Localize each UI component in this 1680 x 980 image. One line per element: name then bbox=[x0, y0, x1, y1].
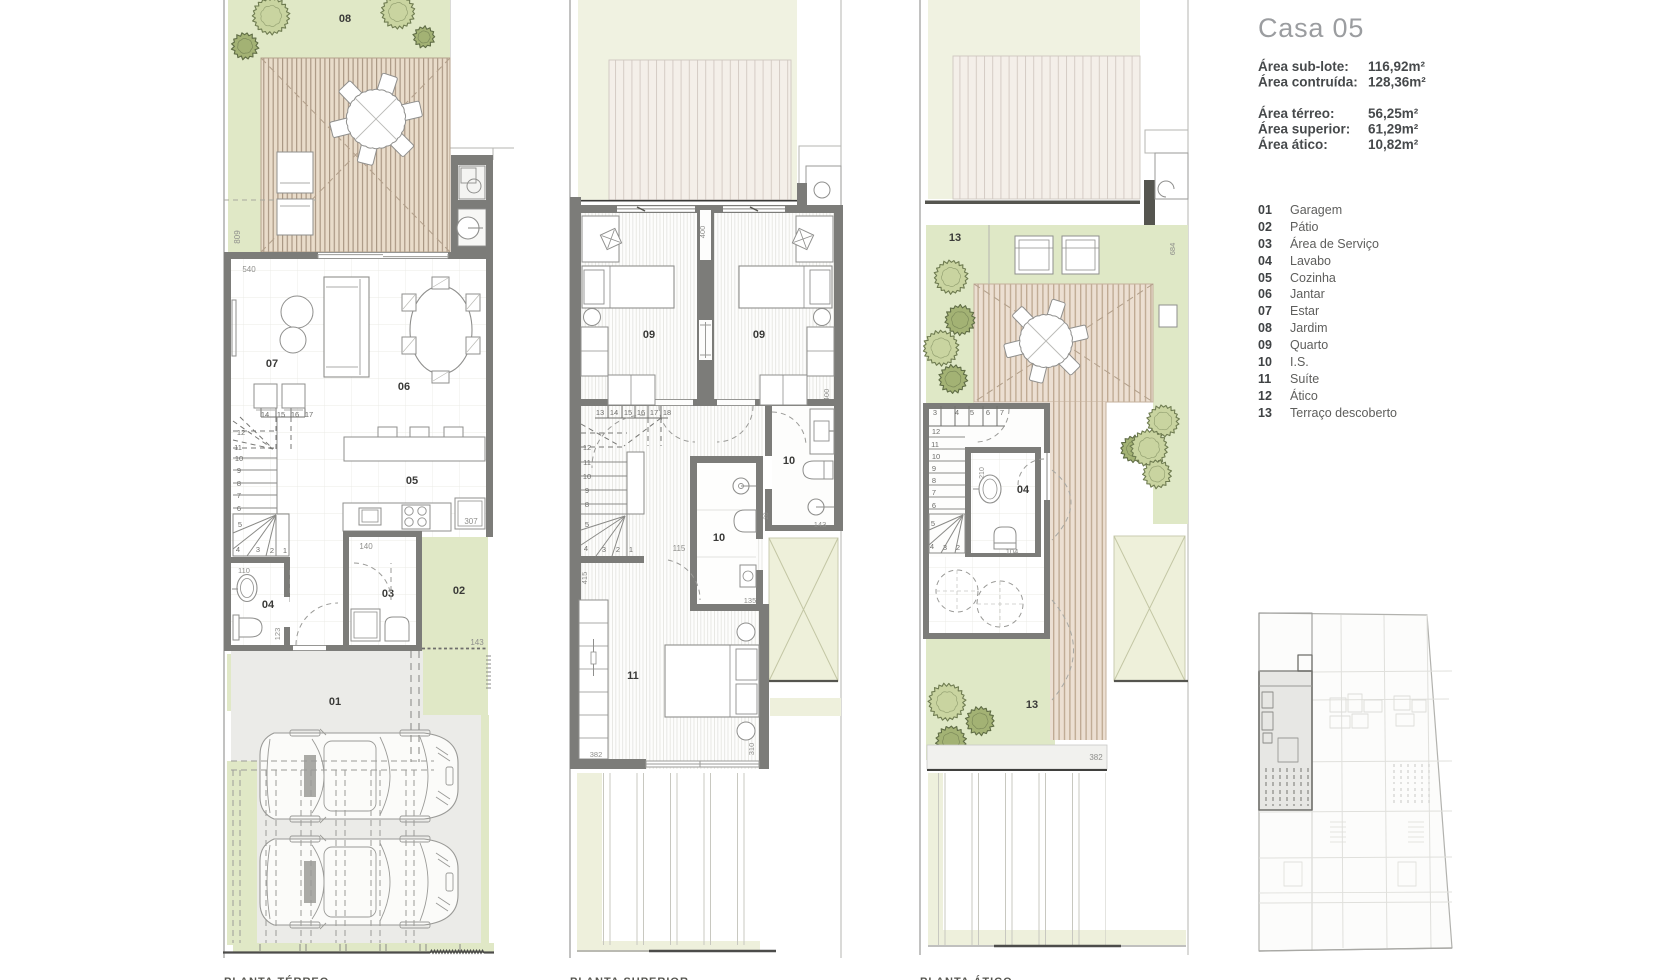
svg-text:9: 9 bbox=[585, 486, 589, 495]
svg-text:307: 307 bbox=[464, 517, 478, 526]
svg-text:Pátio: Pátio bbox=[1290, 220, 1319, 234]
svg-text:143: 143 bbox=[814, 520, 827, 529]
svg-text:Área contruída:: Área contruída: bbox=[1258, 75, 1358, 90]
svg-text:7: 7 bbox=[1000, 408, 1004, 417]
svg-text:11: 11 bbox=[627, 670, 639, 682]
svg-text:04: 04 bbox=[1258, 254, 1272, 268]
svg-text:09: 09 bbox=[643, 329, 655, 341]
svg-text:3: 3 bbox=[602, 545, 606, 554]
svg-text:310: 310 bbox=[747, 743, 756, 756]
svg-text:382: 382 bbox=[1089, 753, 1103, 762]
svg-text:5: 5 bbox=[931, 519, 935, 528]
svg-text:61,29m²: 61,29m² bbox=[1368, 122, 1419, 137]
svg-text:415: 415 bbox=[580, 572, 589, 585]
svg-text:Área térreo:: Área térreo: bbox=[1258, 106, 1335, 121]
svg-text:13: 13 bbox=[1258, 406, 1272, 420]
svg-text:10,82m²: 10,82m² bbox=[1368, 137, 1419, 152]
svg-text:14: 14 bbox=[610, 408, 618, 417]
svg-text:382: 382 bbox=[590, 750, 603, 759]
svg-text:5: 5 bbox=[238, 520, 242, 529]
svg-text:10: 10 bbox=[713, 532, 725, 544]
svg-text:6: 6 bbox=[237, 504, 241, 513]
svg-text:12: 12 bbox=[932, 427, 940, 436]
svg-text:11: 11 bbox=[583, 458, 591, 467]
svg-text:05: 05 bbox=[1258, 271, 1272, 285]
svg-text:11: 11 bbox=[931, 440, 939, 449]
svg-text:Estar: Estar bbox=[1290, 304, 1319, 318]
svg-text:18: 18 bbox=[663, 408, 671, 417]
svg-text:06: 06 bbox=[1258, 287, 1272, 301]
svg-text:11: 11 bbox=[1258, 372, 1271, 386]
svg-text:PLANTA TÉRREO: PLANTA TÉRREO bbox=[224, 975, 329, 980]
svg-text:128,36m²: 128,36m² bbox=[1368, 75, 1426, 90]
svg-text:Cozinha: Cozinha bbox=[1290, 271, 1336, 285]
svg-text:8: 8 bbox=[932, 476, 936, 485]
svg-text:400: 400 bbox=[698, 226, 707, 239]
svg-text:12: 12 bbox=[583, 443, 591, 452]
svg-text:Área sub-lote:: Área sub-lote: bbox=[1258, 59, 1349, 74]
svg-text:116,92m²: 116,92m² bbox=[1368, 59, 1426, 74]
svg-text:Casa 05: Casa 05 bbox=[1258, 13, 1364, 43]
svg-text:3: 3 bbox=[943, 543, 947, 552]
svg-text:02: 02 bbox=[453, 585, 465, 597]
svg-text:05: 05 bbox=[406, 475, 418, 487]
svg-text:12: 12 bbox=[237, 428, 245, 437]
svg-text:08: 08 bbox=[1258, 321, 1272, 335]
svg-text:56,25m²: 56,25m² bbox=[1368, 106, 1419, 121]
svg-text:Jantar: Jantar bbox=[1290, 287, 1325, 301]
svg-text:210: 210 bbox=[979, 467, 986, 479]
svg-text:Terraço descoberto: Terraço descoberto bbox=[1290, 406, 1397, 420]
svg-text:Área de Serviço: Área de Serviço bbox=[1290, 236, 1379, 251]
svg-text:01: 01 bbox=[1258, 203, 1272, 217]
svg-text:03: 03 bbox=[1258, 237, 1272, 251]
svg-text:809: 809 bbox=[233, 230, 242, 244]
svg-text:540: 540 bbox=[242, 265, 256, 274]
svg-text:4: 4 bbox=[930, 542, 934, 551]
svg-text:Ático: Ático bbox=[1290, 388, 1318, 403]
svg-text:4: 4 bbox=[584, 544, 588, 553]
svg-text:7: 7 bbox=[237, 491, 241, 500]
svg-text:8: 8 bbox=[237, 479, 241, 488]
svg-text:11: 11 bbox=[234, 443, 242, 452]
svg-text:7: 7 bbox=[932, 488, 936, 497]
svg-text:115: 115 bbox=[673, 544, 686, 553]
svg-text:2: 2 bbox=[616, 545, 620, 554]
svg-text:2: 2 bbox=[956, 543, 960, 552]
svg-text:08: 08 bbox=[339, 13, 351, 25]
svg-text:04: 04 bbox=[1017, 484, 1030, 496]
svg-text:04: 04 bbox=[262, 599, 275, 611]
svg-text:3: 3 bbox=[256, 545, 260, 554]
svg-text:Jardim: Jardim bbox=[1290, 321, 1328, 335]
svg-text:1: 1 bbox=[283, 546, 287, 555]
svg-text:Garagem: Garagem bbox=[1290, 203, 1342, 217]
svg-text:Quarto: Quarto bbox=[1290, 338, 1328, 352]
svg-text:01: 01 bbox=[329, 696, 341, 708]
svg-text:6: 6 bbox=[986, 408, 990, 417]
svg-text:16: 16 bbox=[291, 410, 299, 419]
svg-text:3: 3 bbox=[933, 408, 937, 417]
svg-text:15: 15 bbox=[624, 408, 632, 417]
svg-text:1: 1 bbox=[629, 545, 633, 554]
svg-text:Área ático:: Área ático: bbox=[1258, 137, 1328, 152]
svg-text:07: 07 bbox=[1258, 304, 1272, 318]
svg-text:123: 123 bbox=[273, 628, 282, 641]
svg-text:09: 09 bbox=[1258, 338, 1272, 352]
svg-text:4: 4 bbox=[236, 545, 240, 554]
svg-text:I.S.: I.S. bbox=[1290, 355, 1309, 369]
svg-text:143: 143 bbox=[470, 638, 484, 647]
svg-text:17: 17 bbox=[305, 410, 313, 419]
svg-text:140: 140 bbox=[359, 542, 373, 551]
svg-text:12: 12 bbox=[1258, 389, 1272, 403]
svg-text:135: 135 bbox=[744, 596, 757, 605]
svg-text:10: 10 bbox=[783, 455, 795, 467]
svg-text:PLANTA ÁTICO: PLANTA ÁTICO bbox=[920, 975, 1013, 980]
svg-text:10: 10 bbox=[932, 452, 940, 461]
svg-text:14: 14 bbox=[261, 410, 269, 419]
svg-text:13: 13 bbox=[1026, 699, 1038, 711]
svg-text:07: 07 bbox=[266, 358, 278, 370]
svg-text:4: 4 bbox=[955, 408, 959, 417]
svg-text:10: 10 bbox=[583, 472, 591, 481]
svg-text:03: 03 bbox=[382, 588, 394, 600]
svg-text:104: 104 bbox=[1006, 547, 1019, 556]
svg-text:15: 15 bbox=[277, 410, 285, 419]
svg-text:9: 9 bbox=[237, 466, 241, 475]
svg-text:6: 6 bbox=[932, 501, 936, 510]
svg-text:20: 20 bbox=[763, 512, 770, 520]
svg-text:684: 684 bbox=[1168, 243, 1177, 256]
svg-text:5: 5 bbox=[585, 520, 589, 529]
svg-text:Área superior:: Área superior: bbox=[1258, 122, 1350, 137]
svg-text:9: 9 bbox=[932, 464, 936, 473]
svg-text:110: 110 bbox=[238, 566, 250, 575]
svg-text:10: 10 bbox=[1258, 355, 1272, 369]
svg-text:8: 8 bbox=[585, 500, 589, 509]
svg-text:Lavabo: Lavabo bbox=[1290, 254, 1331, 268]
svg-text:02: 02 bbox=[1258, 220, 1272, 234]
svg-text:5: 5 bbox=[970, 408, 974, 417]
svg-text:06: 06 bbox=[398, 381, 410, 393]
svg-text:17: 17 bbox=[650, 408, 658, 417]
svg-text:Suíte: Suíte bbox=[1290, 372, 1319, 386]
svg-text:13: 13 bbox=[596, 408, 604, 417]
svg-text:13: 13 bbox=[949, 232, 961, 244]
svg-text:09: 09 bbox=[753, 329, 765, 341]
svg-text:PLANTA SUPERIOR: PLANTA SUPERIOR bbox=[570, 976, 689, 980]
svg-text:2: 2 bbox=[270, 546, 274, 555]
svg-text:10: 10 bbox=[235, 454, 243, 463]
svg-text:16: 16 bbox=[637, 408, 645, 417]
